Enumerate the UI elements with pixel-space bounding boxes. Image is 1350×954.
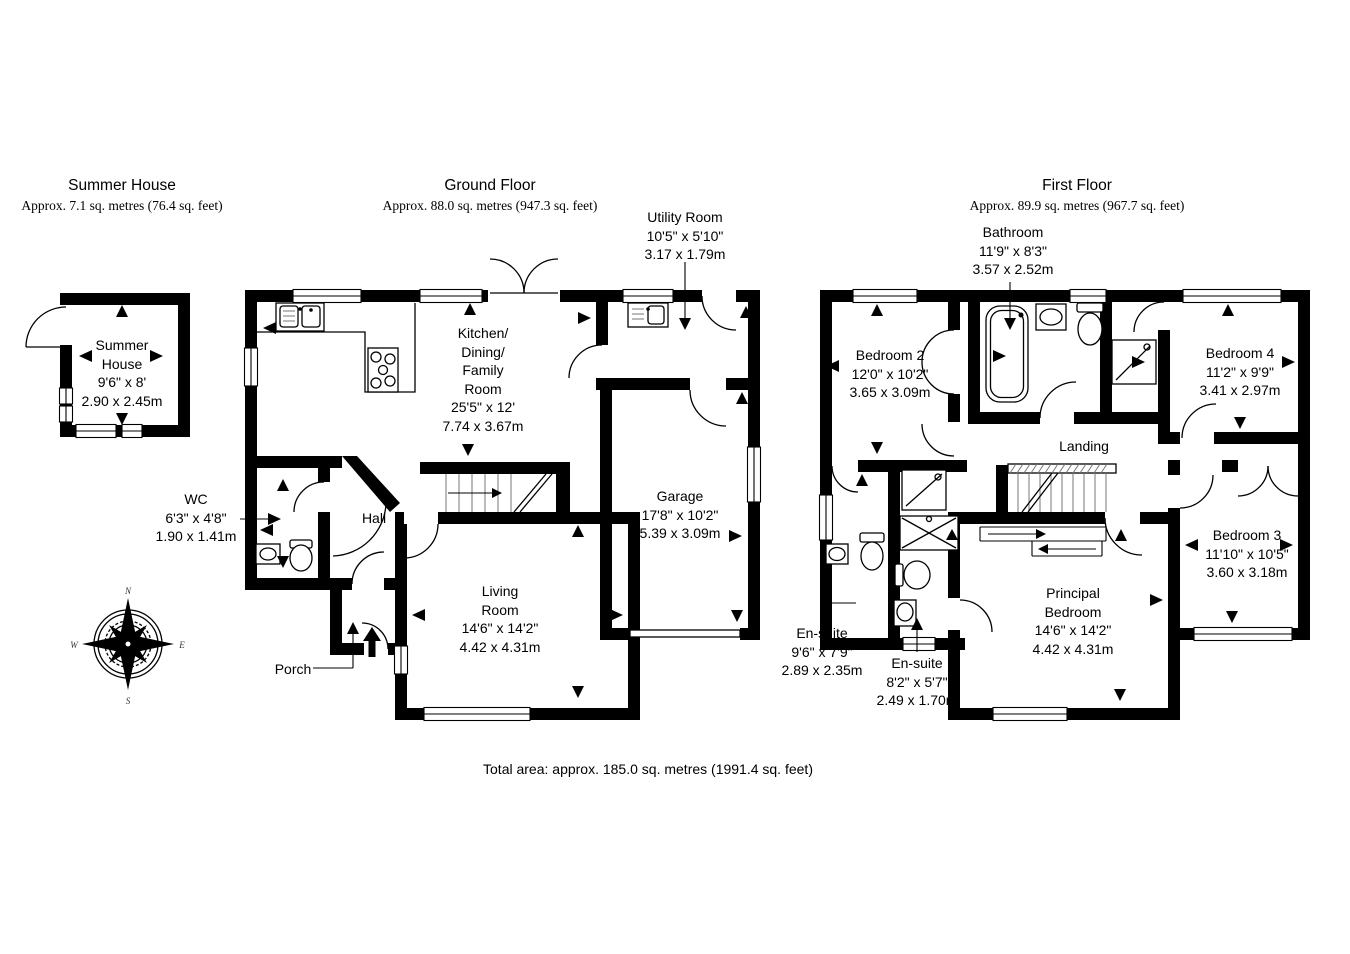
- dimension-arrow: [572, 525, 584, 537]
- entry-arrow-icon: [363, 627, 381, 657]
- hob-icon: [368, 348, 398, 392]
- dimension-arrow: [1234, 417, 1246, 429]
- dimension-arrow: [871, 304, 883, 316]
- sink-icon: [894, 600, 916, 626]
- dimension-arrow: [1222, 304, 1234, 316]
- dimension-arrow: [1185, 539, 1198, 551]
- compass-north-label: N: [124, 586, 132, 596]
- door-arc: [1180, 475, 1213, 508]
- stairs-icon: [446, 474, 552, 512]
- door-arc: [690, 390, 726, 426]
- door-arc: [404, 524, 438, 558]
- dimension-arrow: [260, 524, 273, 536]
- room-label-bedroom-2: Bedroom 2 12'0" x 10'2" 3.65 x 3.09m: [850, 346, 931, 402]
- dimension-arrow: [462, 444, 474, 456]
- stairs-icon: [1008, 464, 1116, 512]
- floor-title: Ground Floor: [383, 176, 598, 196]
- first-floor-header: First Floor Approx. 89.9 sq. metres (967…: [970, 176, 1185, 216]
- sink-icon: [1036, 304, 1066, 330]
- dimension-arrow: [871, 442, 883, 454]
- garage-door: [630, 630, 740, 637]
- door-arc: [1040, 382, 1076, 418]
- door-arc: [1134, 302, 1164, 332]
- dimension-arrow: [1282, 356, 1295, 368]
- room-label-porch: Porch: [275, 660, 312, 679]
- dimension-arrow: [729, 530, 742, 542]
- french-door: [490, 259, 558, 293]
- room-label-hall: Hall: [362, 509, 386, 528]
- door-arc: [569, 345, 602, 378]
- toilet-icon: [290, 540, 312, 571]
- dimension-arrow: [116, 305, 128, 317]
- dimension-arrow: [736, 392, 748, 404]
- compass-east-label: E: [178, 640, 185, 650]
- room-label-bedroom-3: Bedroom 3 11'10" x 10'5" 3.60 x 3.18m: [1205, 526, 1289, 582]
- door-arc: [294, 482, 324, 512]
- toilet-icon: [860, 533, 884, 570]
- floor-area: Approx. 89.9 sq. metres (967.7 sq. feet): [970, 196, 1185, 216]
- room-label-utility: Utility Room 10'5" x 5'10" 3.17 x 1.79m: [645, 208, 726, 264]
- dimension-arrow: [116, 413, 128, 425]
- dimension-arrow: [1226, 611, 1238, 623]
- room-label-landing: Landing: [1059, 437, 1109, 456]
- wardrobe-door-arc: [1268, 466, 1298, 496]
- room-label-principal-bedroom: Principal Bedroom 14'6" x 14'2" 4.42 x 4…: [1033, 584, 1114, 658]
- toilet-icon: [1077, 303, 1103, 345]
- compass-rose: N E S W: [70, 586, 185, 706]
- sink-icon: [826, 544, 848, 564]
- dimension-arrow: [731, 610, 743, 622]
- dimension-arrow: [610, 609, 623, 621]
- dimension-arrow: [572, 686, 584, 698]
- room-label-summer-house: Summer House 9'6" x 8' 2.90 x 2.45m: [82, 336, 163, 410]
- door-arc: [352, 552, 384, 584]
- dimension-arrow: [464, 303, 476, 315]
- room-label-kitchen: Kitchen/ Dining/ Family Room 25'5" x 12'…: [443, 324, 524, 436]
- floor-plan-drawing: N E S W: [0, 0, 1350, 954]
- sink-icon: [256, 544, 280, 564]
- room-label-ensuite-2: En-suite 8'2" x 5'7" 2.49 x 1.70m: [877, 654, 958, 710]
- total-area-note: Total area: approx. 185.0 sq. metres (19…: [483, 761, 813, 777]
- room-label-ensuite-1: En-suite 9'6" x 7'9" 2.89 x 2.35m: [782, 624, 863, 680]
- dimension-arrow: [277, 479, 289, 491]
- dimension-arrow: [578, 312, 591, 324]
- shower-icon: [1112, 340, 1156, 384]
- dimension-arrow: [1114, 689, 1126, 701]
- utility-sink-icon: [628, 303, 668, 327]
- sliding-wardrobe: [980, 527, 1106, 556]
- floor-title: First Floor: [970, 176, 1185, 196]
- room-label-bedroom-4: Bedroom 4 11'2" x 9'9" 3.41 x 2.97m: [1200, 344, 1281, 400]
- floor-area: Approx. 88.0 sq. metres (947.3 sq. feet): [383, 196, 598, 216]
- door-arc: [960, 600, 992, 632]
- door-arc: [26, 307, 66, 347]
- room-label-living-room: Living Room 14'6" x 14'2" 4.42 x 4.31m: [460, 582, 541, 656]
- summer-house-header: Summer House Approx. 7.1 sq. metres (76.…: [21, 176, 222, 216]
- dimension-arrow: [412, 609, 425, 621]
- compass-south-label: S: [126, 696, 131, 706]
- compass-west-label: W: [70, 640, 79, 650]
- dimension-arrow: [1115, 529, 1127, 541]
- wardrobe-door-arc: [1238, 466, 1268, 496]
- door-arc: [832, 466, 858, 492]
- toilet-icon: [895, 561, 930, 589]
- floorplan-page: N E S W Summer House Approx. 7.1 sq. met…: [0, 0, 1350, 954]
- floor-area: Approx. 7.1 sq. metres (76.4 sq. feet): [21, 196, 222, 216]
- floor-title: Summer House: [21, 176, 222, 196]
- ground-floor-header: Ground Floor Approx. 88.0 sq. metres (94…: [383, 176, 598, 216]
- room-label-wc: WC 6'3" x 4'8" 1.90 x 1.41m: [156, 490, 237, 546]
- door-arc: [1182, 404, 1216, 438]
- dimension-arrow: [856, 474, 868, 486]
- room-label-garage: Garage 17'8" x 10'2" 5.39 x 3.09m: [640, 487, 721, 543]
- shower-icon: [902, 470, 946, 510]
- room-label-bathroom: Bathroom 11'9" x 8'3" 3.57 x 2.52m: [973, 223, 1054, 279]
- door-arc: [922, 424, 954, 456]
- kitchen-sink-icon: [276, 303, 324, 331]
- dimension-arrow: [1150, 594, 1163, 606]
- shower-icon: [900, 516, 958, 550]
